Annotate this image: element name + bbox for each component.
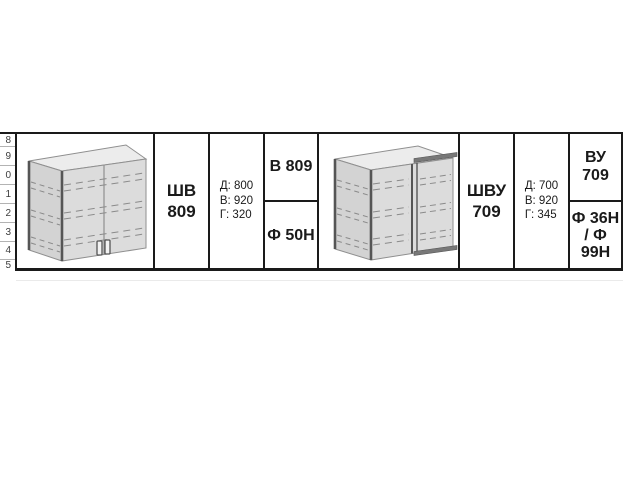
facade-column-shvu709: ВУ 709 Ф 36Н / Ф 99Н: [570, 134, 621, 268]
model-name-line: 709: [472, 201, 500, 222]
row-index: 0: [0, 166, 15, 185]
facade-code-top: В 809: [265, 134, 317, 202]
corner-wall-cabinet-drawing: [318, 134, 459, 268]
facade-column-shv809: В 809 Ф 50Н: [265, 134, 319, 268]
row-index: 1: [0, 185, 15, 204]
row-index: 5: [0, 260, 15, 271]
catalog-table: ШВ 809 Д: 800 В: 920 Г: 320 В 809 Ф 50Н: [15, 132, 623, 271]
model-name-cell-shvu709: ШВУ 709: [460, 134, 515, 268]
facade-code-line: 99Н: [572, 244, 619, 261]
dimensions-block: Д: 700 В: 920 Г: 345: [525, 179, 558, 223]
row-index: 8: [0, 134, 15, 147]
model-name-line: ШВ: [167, 180, 196, 201]
facade-code-bottom: Ф 50Н: [265, 202, 317, 268]
facade-code-multiline: Ф 36Н / Ф 99Н: [572, 210, 619, 261]
model-name-line: 809: [167, 201, 195, 222]
next-row-ghost-line: [16, 280, 623, 281]
catalog-page: 8 9 0 1 2 3 4 5: [0, 0, 625, 500]
dimension-length: Д: 800: [220, 179, 253, 194]
dimension-height: В: 920: [525, 194, 558, 209]
row-index-column: 8 9 0 1 2 3 4 5: [0, 132, 15, 271]
facade-code-line: / Ф: [572, 227, 619, 244]
dimension-depth: Г: 320: [220, 208, 253, 223]
two-door-wall-cabinet-drawing: [16, 134, 155, 268]
row-index: 4: [0, 242, 15, 260]
dimension-depth: Г: 345: [525, 208, 558, 223]
row-index: 9: [0, 147, 15, 166]
dimension-height: В: 920: [220, 194, 253, 209]
dimensions-block: Д: 800 В: 920 Г: 320: [220, 179, 253, 223]
model-name-cell-shv809: ШВ 809: [155, 134, 210, 268]
facade-code-line: Ф 36Н: [572, 210, 619, 227]
dimension-length: Д: 700: [525, 179, 558, 194]
facade-code-line: Ф 50Н: [267, 227, 314, 244]
drawing-cell-shv809: [17, 134, 155, 268]
model-name-line: ШВУ: [467, 180, 506, 201]
facade-code-top: ВУ 709: [570, 134, 621, 202]
row-index: 3: [0, 223, 15, 242]
drawing-cell-shvu709: [319, 134, 460, 268]
row-index: 2: [0, 204, 15, 223]
dimensions-cell-shv809: Д: 800 В: 920 Г: 320: [210, 134, 265, 268]
dimensions-cell-shvu709: Д: 700 В: 920 Г: 345: [515, 134, 570, 268]
facade-code-bottom: Ф 36Н / Ф 99Н: [570, 202, 621, 268]
